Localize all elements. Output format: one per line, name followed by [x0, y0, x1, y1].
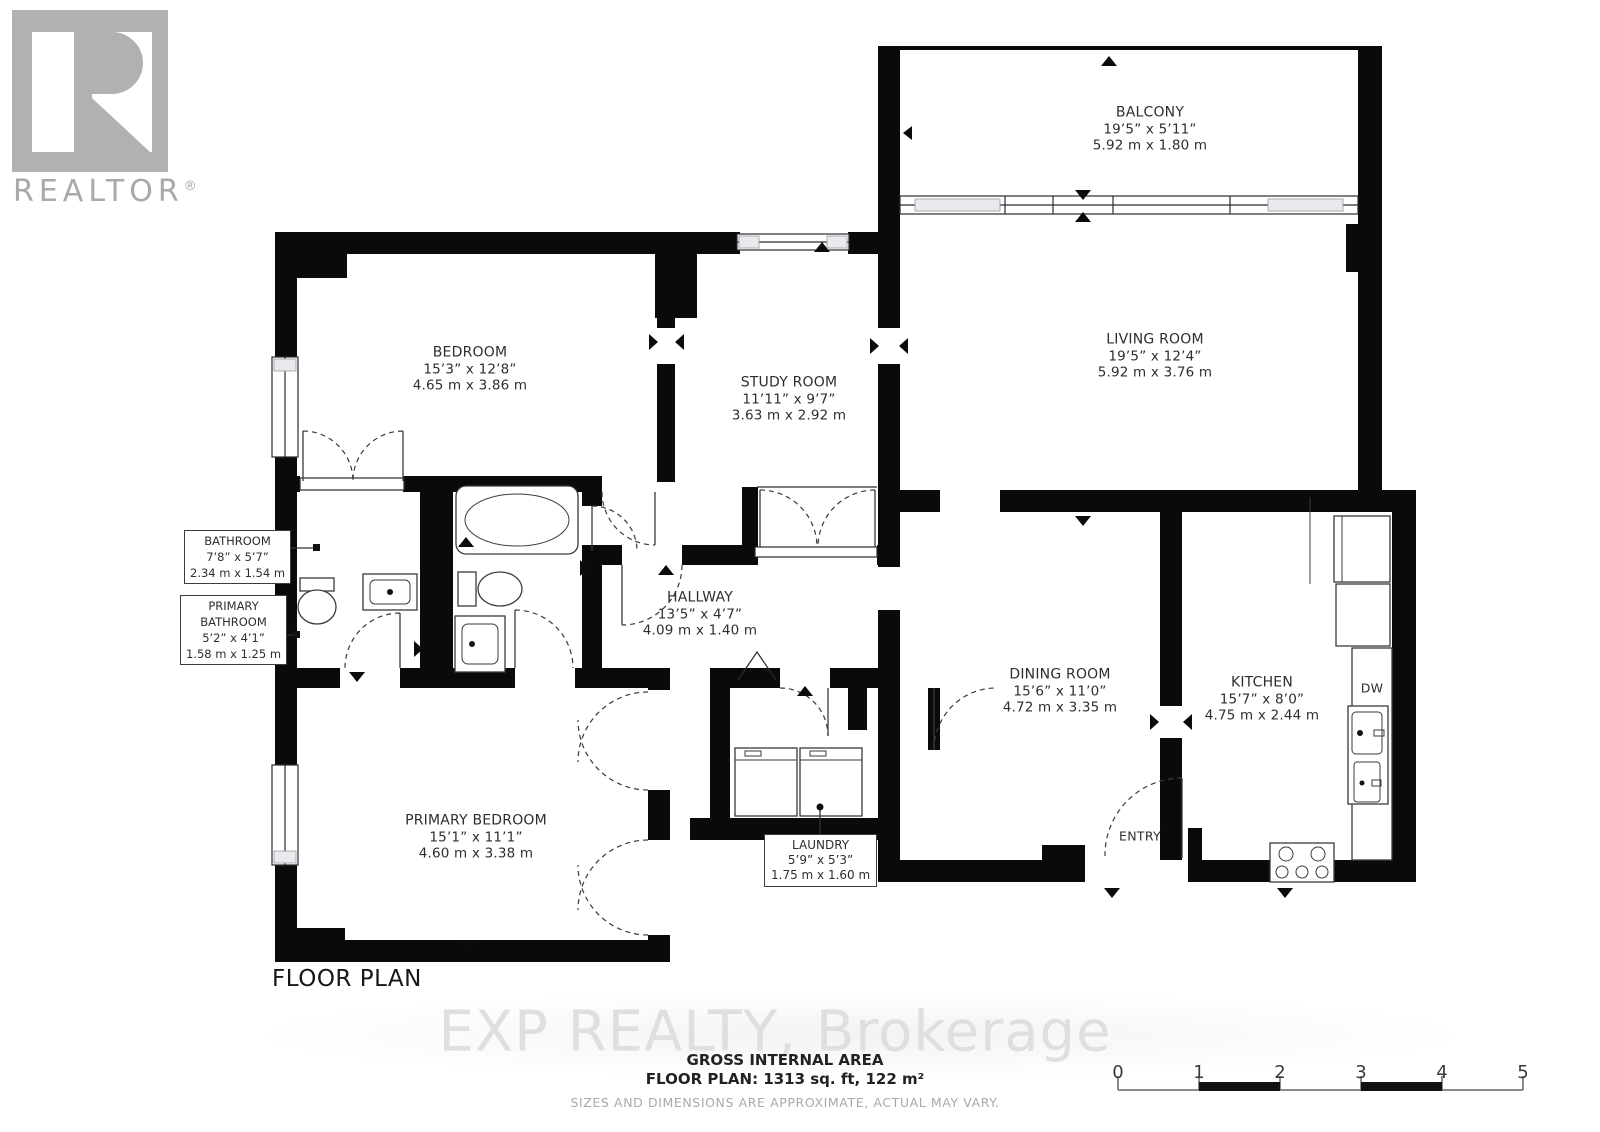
registered-mark: ®: [184, 179, 197, 194]
primary-bedroom-name: PRIMARY BEDROOM: [405, 812, 547, 829]
primary-bathroom-label: PRIMARY BATHROOM 5’2” x 4’1” 1.58 m x 1.…: [180, 595, 287, 665]
entry-label: ENTRY: [1119, 829, 1161, 844]
counter-icon: [1336, 584, 1390, 646]
washer-icon: [735, 748, 797, 816]
living-room-name: LIVING ROOM: [1098, 331, 1213, 348]
dining-room-label: DINING ROOM 15’6” x 11’0” 4.72 m x 3.35 …: [1003, 666, 1118, 716]
primary-bedroom-label: PRIMARY BEDROOM 15’1” x 11’1” 4.60 m x 3…: [405, 812, 547, 862]
study-room-imperial: 11’11” x 9’7”: [732, 391, 847, 408]
kitchen-name: KITCHEN: [1205, 674, 1320, 691]
living-room-label: LIVING ROOM 19’5” x 12’4” 5.92 m x 3.76 …: [1098, 331, 1213, 381]
primary-bedroom-imperial: 15’1” x 11’1”: [405, 829, 547, 846]
scale-label-1: 1: [1193, 1062, 1204, 1083]
laundry-metric: 1.75 m x 1.60 m: [771, 868, 870, 883]
kitchen-label: KITCHEN 15’7” x 8’0” 4.75 m x 2.44 m: [1205, 674, 1320, 724]
balcony-name: BALCONY: [1093, 104, 1208, 121]
living-room-imperial: 19’5” x 12’4”: [1098, 348, 1213, 365]
hallway-name: HALLWAY: [643, 589, 758, 606]
primary-bedroom-metric: 4.60 m x 3.38 m: [405, 845, 547, 862]
balcony-metric: 5.92 m x 1.80 m: [1093, 137, 1208, 154]
living-room-metric: 5.92 m x 3.76 m: [1098, 364, 1213, 381]
primary-bathroom-imperial: 5’2” x 4’1”: [186, 630, 281, 646]
scale-label-2: 2: [1274, 1062, 1285, 1083]
hallway-label: HALLWAY 13’5” x 4’7” 4.09 m x 1.40 m: [643, 589, 758, 639]
dining-room-metric: 4.72 m x 3.35 m: [1003, 699, 1118, 716]
dryer-icon: [800, 748, 862, 816]
scale-label-4: 4: [1436, 1062, 1447, 1083]
study-room-name: STUDY ROOM: [732, 374, 847, 391]
gross-internal-area-title: GROSS INTERNAL AREA: [687, 1051, 884, 1069]
bedroom-name: BEDROOM: [413, 344, 528, 361]
bedroom-label: BEDROOM 15’3” x 12’8” 4.65 m x 3.86 m: [413, 344, 528, 394]
bathtub-icon: [456, 486, 578, 554]
primary-bathroom-name-1: PRIMARY: [186, 598, 281, 614]
bathroom-name: BATHROOM: [190, 533, 285, 549]
bathroom-metric: 2.34 m x 1.54 m: [190, 565, 285, 581]
floorplan-page: REALTOR® EXP REALTY, Brokerage BALCONY 1…: [0, 0, 1600, 1132]
dishwasher-label: DW: [1361, 681, 1384, 696]
bathroom-label: BATHROOM 7’8” x 5’7” 2.34 m x 1.54 m: [184, 530, 291, 584]
scale-label-5: 5: [1517, 1062, 1528, 1083]
page-title: FLOOR PLAN: [272, 966, 422, 992]
gross-internal-area-value: FLOOR PLAN: 1313 sq. ft, 122 m²: [646, 1070, 924, 1088]
primary-bathroom-name-2: BATHROOM: [186, 614, 281, 630]
dining-room-imperial: 15’6” x 11’0”: [1003, 683, 1118, 700]
hallway-imperial: 13’5” x 4’7”: [643, 606, 758, 623]
study-room-label: STUDY ROOM 11’11” x 9’7” 3.63 m x 2.92 m: [732, 374, 847, 424]
balcony-imperial: 19’5” x 5’11”: [1093, 121, 1208, 138]
hallway-metric: 4.09 m x 1.40 m: [643, 622, 758, 639]
laundry-imperial: 5’9” x 5’3”: [771, 853, 870, 868]
balcony-label: BALCONY 19’5” x 5’11” 5.92 m x 1.80 m: [1093, 104, 1208, 154]
dining-room-name: DINING ROOM: [1003, 666, 1118, 683]
bedroom-metric: 4.65 m x 3.86 m: [413, 377, 528, 394]
bathroom-imperial: 7’8” x 5’7”: [190, 549, 285, 565]
kitchen-imperial: 15’7” x 8’0”: [1205, 691, 1320, 708]
laundry-name: LAUNDRY: [771, 838, 870, 853]
laundry-label: LAUNDRY 5’9” x 5’3” 1.75 m x 1.60 m: [764, 834, 877, 887]
scale-label-0: 0: [1112, 1062, 1123, 1083]
toilet-icon: [300, 578, 334, 591]
toilet-icon: [458, 572, 476, 606]
scale-bar: [1118, 1076, 1523, 1091]
primary-bathroom-metric: 1.58 m x 1.25 m: [186, 646, 281, 662]
study-room-metric: 3.63 m x 2.92 m: [732, 407, 847, 424]
realtor-logo-icon: [12, 10, 168, 172]
scale-label-3: 3: [1355, 1062, 1366, 1083]
disclaimer-text: SIZES AND DIMENSIONS ARE APPROXIMATE, AC…: [570, 1095, 999, 1110]
realtor-logo-text: REALTOR®: [13, 174, 197, 209]
stove-icon: [1270, 843, 1334, 882]
kitchen-metric: 4.75 m x 2.44 m: [1205, 707, 1320, 724]
realtor-wordmark: REALTOR: [13, 174, 184, 209]
bedroom-imperial: 15’3” x 12’8”: [413, 361, 528, 378]
